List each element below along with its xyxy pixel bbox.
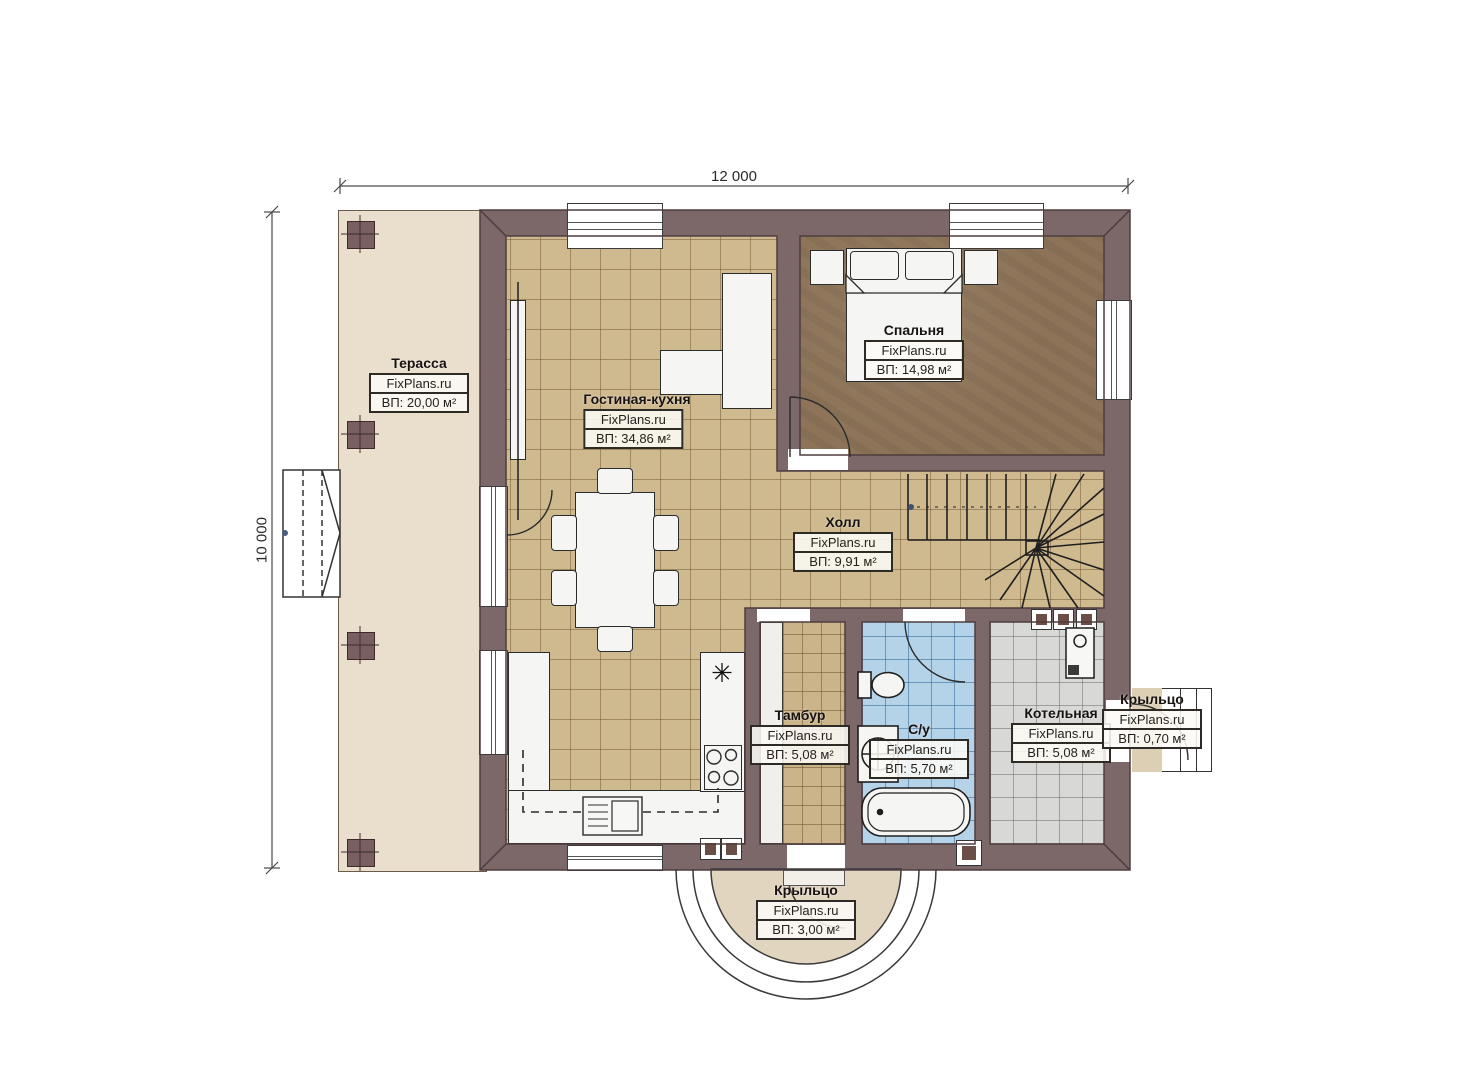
entrance-door-opening [787,845,845,871]
bedroom-door-opening [788,449,848,470]
window [479,650,508,755]
terrace-deck [338,210,487,872]
room-area: ВП: 5,70 м² [871,760,967,777]
dimension-width: 12 000 [711,168,757,185]
radiator [510,300,526,460]
sofa [722,273,772,409]
sofa-chaise [660,350,723,395]
room-area: ВП: 0,70 м² [1104,730,1200,747]
chair [597,468,633,494]
room-area: ВП: 20,00 м² [371,394,467,411]
terrace-column [347,421,375,449]
vent-block [1053,609,1074,630]
window [567,203,663,249]
room-label-vestibule: Тамбур FixPlans.ru ВП: 5,08 м² [750,707,850,765]
watermark: FixPlans.ru [871,741,967,760]
dining-table [575,492,655,628]
room-area: ВП: 9,91 м² [795,553,891,570]
room-label-bedroom: Спальня FixPlans.ru ВП: 14,98 м² [864,322,964,380]
vestibule-door-opening [757,609,810,622]
watermark: FixPlans.ru [795,534,891,553]
nightstand [810,250,844,285]
room-area: ВП: 3,00 м² [758,921,854,938]
room-name: Тамбур [750,707,850,723]
room-label-living-kitchen: Гостиная-кухня FixPlans.ru ВП: 34,86 м² [583,391,690,449]
terrace-column [347,839,375,867]
vent-block [700,838,721,860]
room-area: ВП: 14,98 м² [866,361,962,378]
nightstand [964,250,998,285]
window [1096,300,1132,400]
terrace-door-window [479,486,508,607]
room-label-boiler: Котельная FixPlans.ru ВП: 5,08 м² [1011,705,1111,763]
room-name: Гостиная-кухня [583,391,690,407]
vent-block [956,840,982,866]
stove [704,745,742,790]
chair [653,515,679,551]
vent-block [1076,609,1097,630]
watermark: FixPlans.ru [866,342,962,361]
watermark: FixPlans.ru [758,902,854,921]
floor-plan: ✳ [0,0,1473,1080]
living-kitchen-hall-floor [0,0,1473,1080]
room-area: ВП: 5,08 м² [1013,744,1109,761]
kitchen-counter-bottom [508,790,745,844]
room-label-porch-front: Крыльцо FixPlans.ru ВП: 3,00 м² [756,882,856,940]
room-name: С/у [869,721,969,737]
terrace-column [347,221,375,249]
room-label-porch-right: Крыльцо FixPlans.ru ВП: 0,70 м² [1102,691,1202,749]
pillow [905,251,954,280]
terrace-column [347,632,375,660]
room-name: Крыльцо [1102,691,1202,707]
room-name: Крыльцо [756,882,856,898]
watermark: FixPlans.ru [752,727,848,746]
watermark: FixPlans.ru [1104,711,1200,730]
room-name: Котельная [1011,705,1111,721]
room-name: Спальня [864,322,964,338]
dimension-height: 10 000 [254,517,271,563]
watermark: FixPlans.ru [585,411,681,430]
terrace-side-steps [282,470,340,597]
room-label-bathroom: С/у FixPlans.ru ВП: 5,70 м² [869,721,969,779]
vent-block [721,838,742,860]
room-label-hall: Холл FixPlans.ru ВП: 9,91 м² [793,514,893,572]
chair [551,570,577,606]
room-label-terrace: Терасса FixPlans.ru ВП: 20,00 м² [369,355,469,413]
window [949,203,1044,249]
room-name: Холл [793,514,893,530]
bathroom-door-opening [903,609,965,622]
room-area: ВП: 5,08 м² [752,746,848,763]
watermark: FixPlans.ru [371,375,467,394]
chair [653,570,679,606]
watermark: FixPlans.ru [1013,725,1109,744]
room-name: Терасса [369,355,469,371]
pillow [850,251,899,280]
room-area: ВП: 34,86 м² [585,430,681,447]
chair [597,626,633,652]
fridge-symbol: ✳ [702,656,742,690]
window [567,845,663,871]
chair [551,515,577,551]
vent-block [1031,609,1052,630]
